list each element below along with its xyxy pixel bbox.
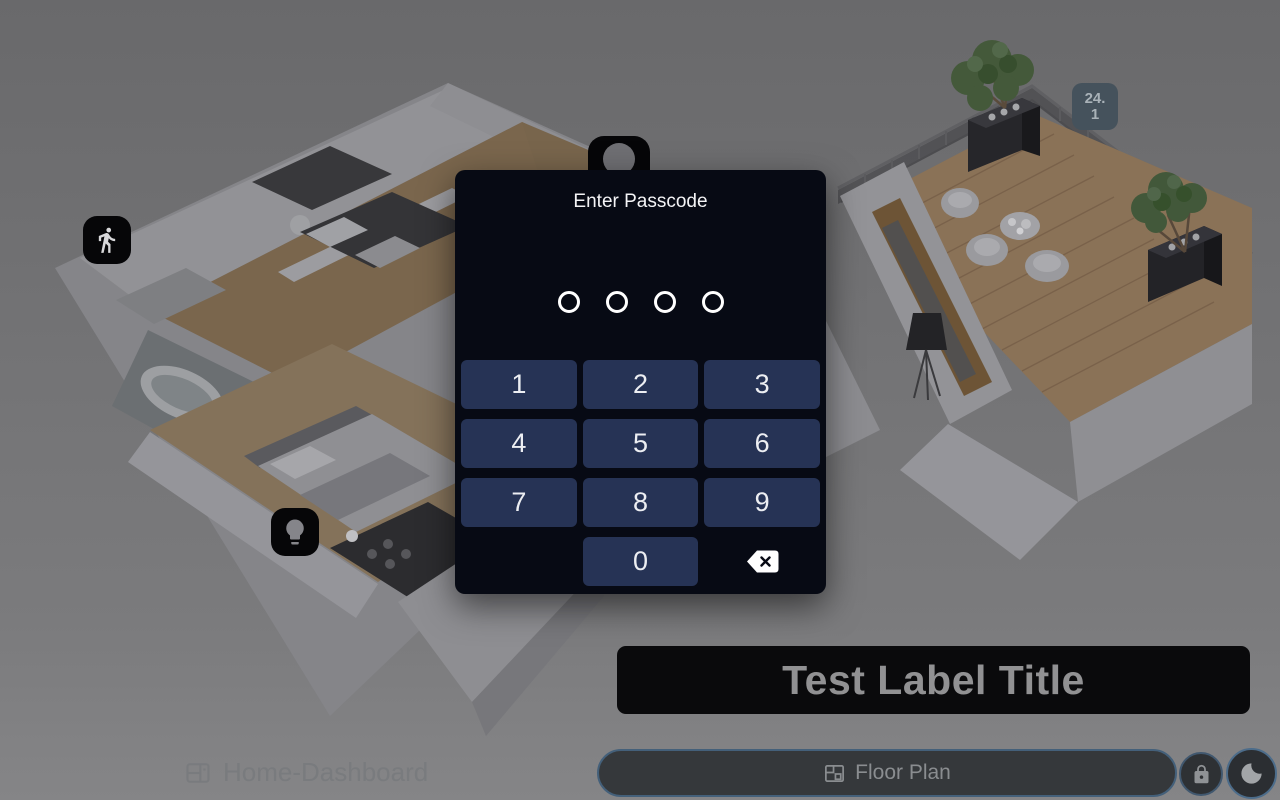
temperature-value: 24.1 — [1081, 91, 1109, 123]
motion-sensor-icon[interactable] — [83, 216, 131, 264]
dashboard-menu-button[interactable]: Home-Dashboard — [184, 757, 428, 788]
home-dashboard-screen: 24.1 Enter Passcode 1 2 3 4 5 6 7 8 9 0 — [0, 0, 1280, 800]
lock-icon — [1191, 764, 1212, 785]
passcode-dot — [702, 291, 724, 313]
keypad-button-6[interactable]: 6 — [704, 419, 820, 468]
walking-person-icon — [93, 226, 121, 254]
view-selector-label: Floor Plan — [855, 761, 951, 785]
keypad-button-2[interactable]: 2 — [583, 360, 699, 409]
passcode-dot — [654, 291, 676, 313]
night-mode-button[interactable] — [1226, 748, 1277, 799]
keypad-button-4[interactable]: 4 — [461, 419, 577, 468]
label-title-box: Test Label Title — [617, 646, 1250, 714]
backspace-button[interactable] — [704, 537, 820, 586]
passcode-dialog-title: Enter Passcode — [455, 191, 826, 213]
keypad-button-5[interactable]: 5 — [583, 419, 699, 468]
passcode-dialog: Enter Passcode 1 2 3 4 5 6 7 8 9 0 — [455, 170, 826, 594]
passcode-keypad: 1 2 3 4 5 6 7 8 9 0 — [461, 360, 820, 586]
temperature-badge[interactable]: 24.1 — [1072, 83, 1118, 130]
label-title-text: Test Label Title — [782, 657, 1085, 704]
lightbulb-icon — [280, 517, 310, 547]
lock-button[interactable] — [1179, 752, 1223, 796]
floorplan-icon — [823, 762, 846, 785]
keypad-button-1[interactable]: 1 — [461, 360, 577, 409]
dashboard-icon — [184, 759, 212, 787]
keypad-spacer — [461, 537, 577, 586]
moon-icon — [1238, 760, 1265, 787]
keypad-button-9[interactable]: 9 — [704, 478, 820, 527]
keypad-button-8[interactable]: 8 — [583, 478, 699, 527]
backspace-icon — [745, 549, 780, 574]
light-sensor-icon[interactable] — [271, 508, 319, 556]
dashboard-title: Home-Dashboard — [223, 757, 428, 788]
passcode-dot — [558, 291, 580, 313]
keypad-button-7[interactable]: 7 — [461, 478, 577, 527]
view-selector[interactable]: Floor Plan — [597, 749, 1177, 797]
keypad-button-3[interactable]: 3 — [704, 360, 820, 409]
keypad-button-0[interactable]: 0 — [583, 537, 699, 586]
passcode-dot — [606, 291, 628, 313]
passcode-dots — [455, 291, 826, 313]
